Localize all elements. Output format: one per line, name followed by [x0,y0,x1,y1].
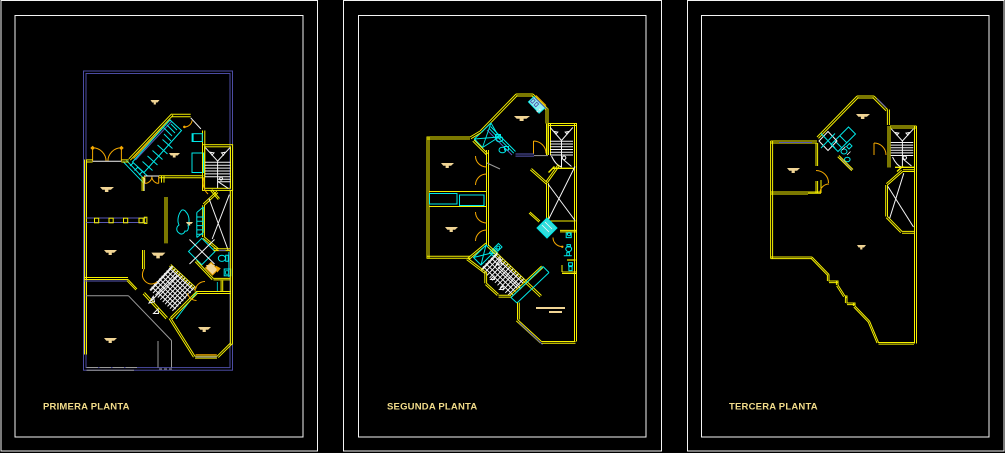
svg-text:TERCERA PLANTA: TERCERA PLANTA [729,402,818,413]
svg-text:SEGUNDA PLANTA: SEGUNDA PLANTA [387,402,477,413]
svg-text:PRIMERA PLANTA: PRIMERA PLANTA [43,402,130,413]
